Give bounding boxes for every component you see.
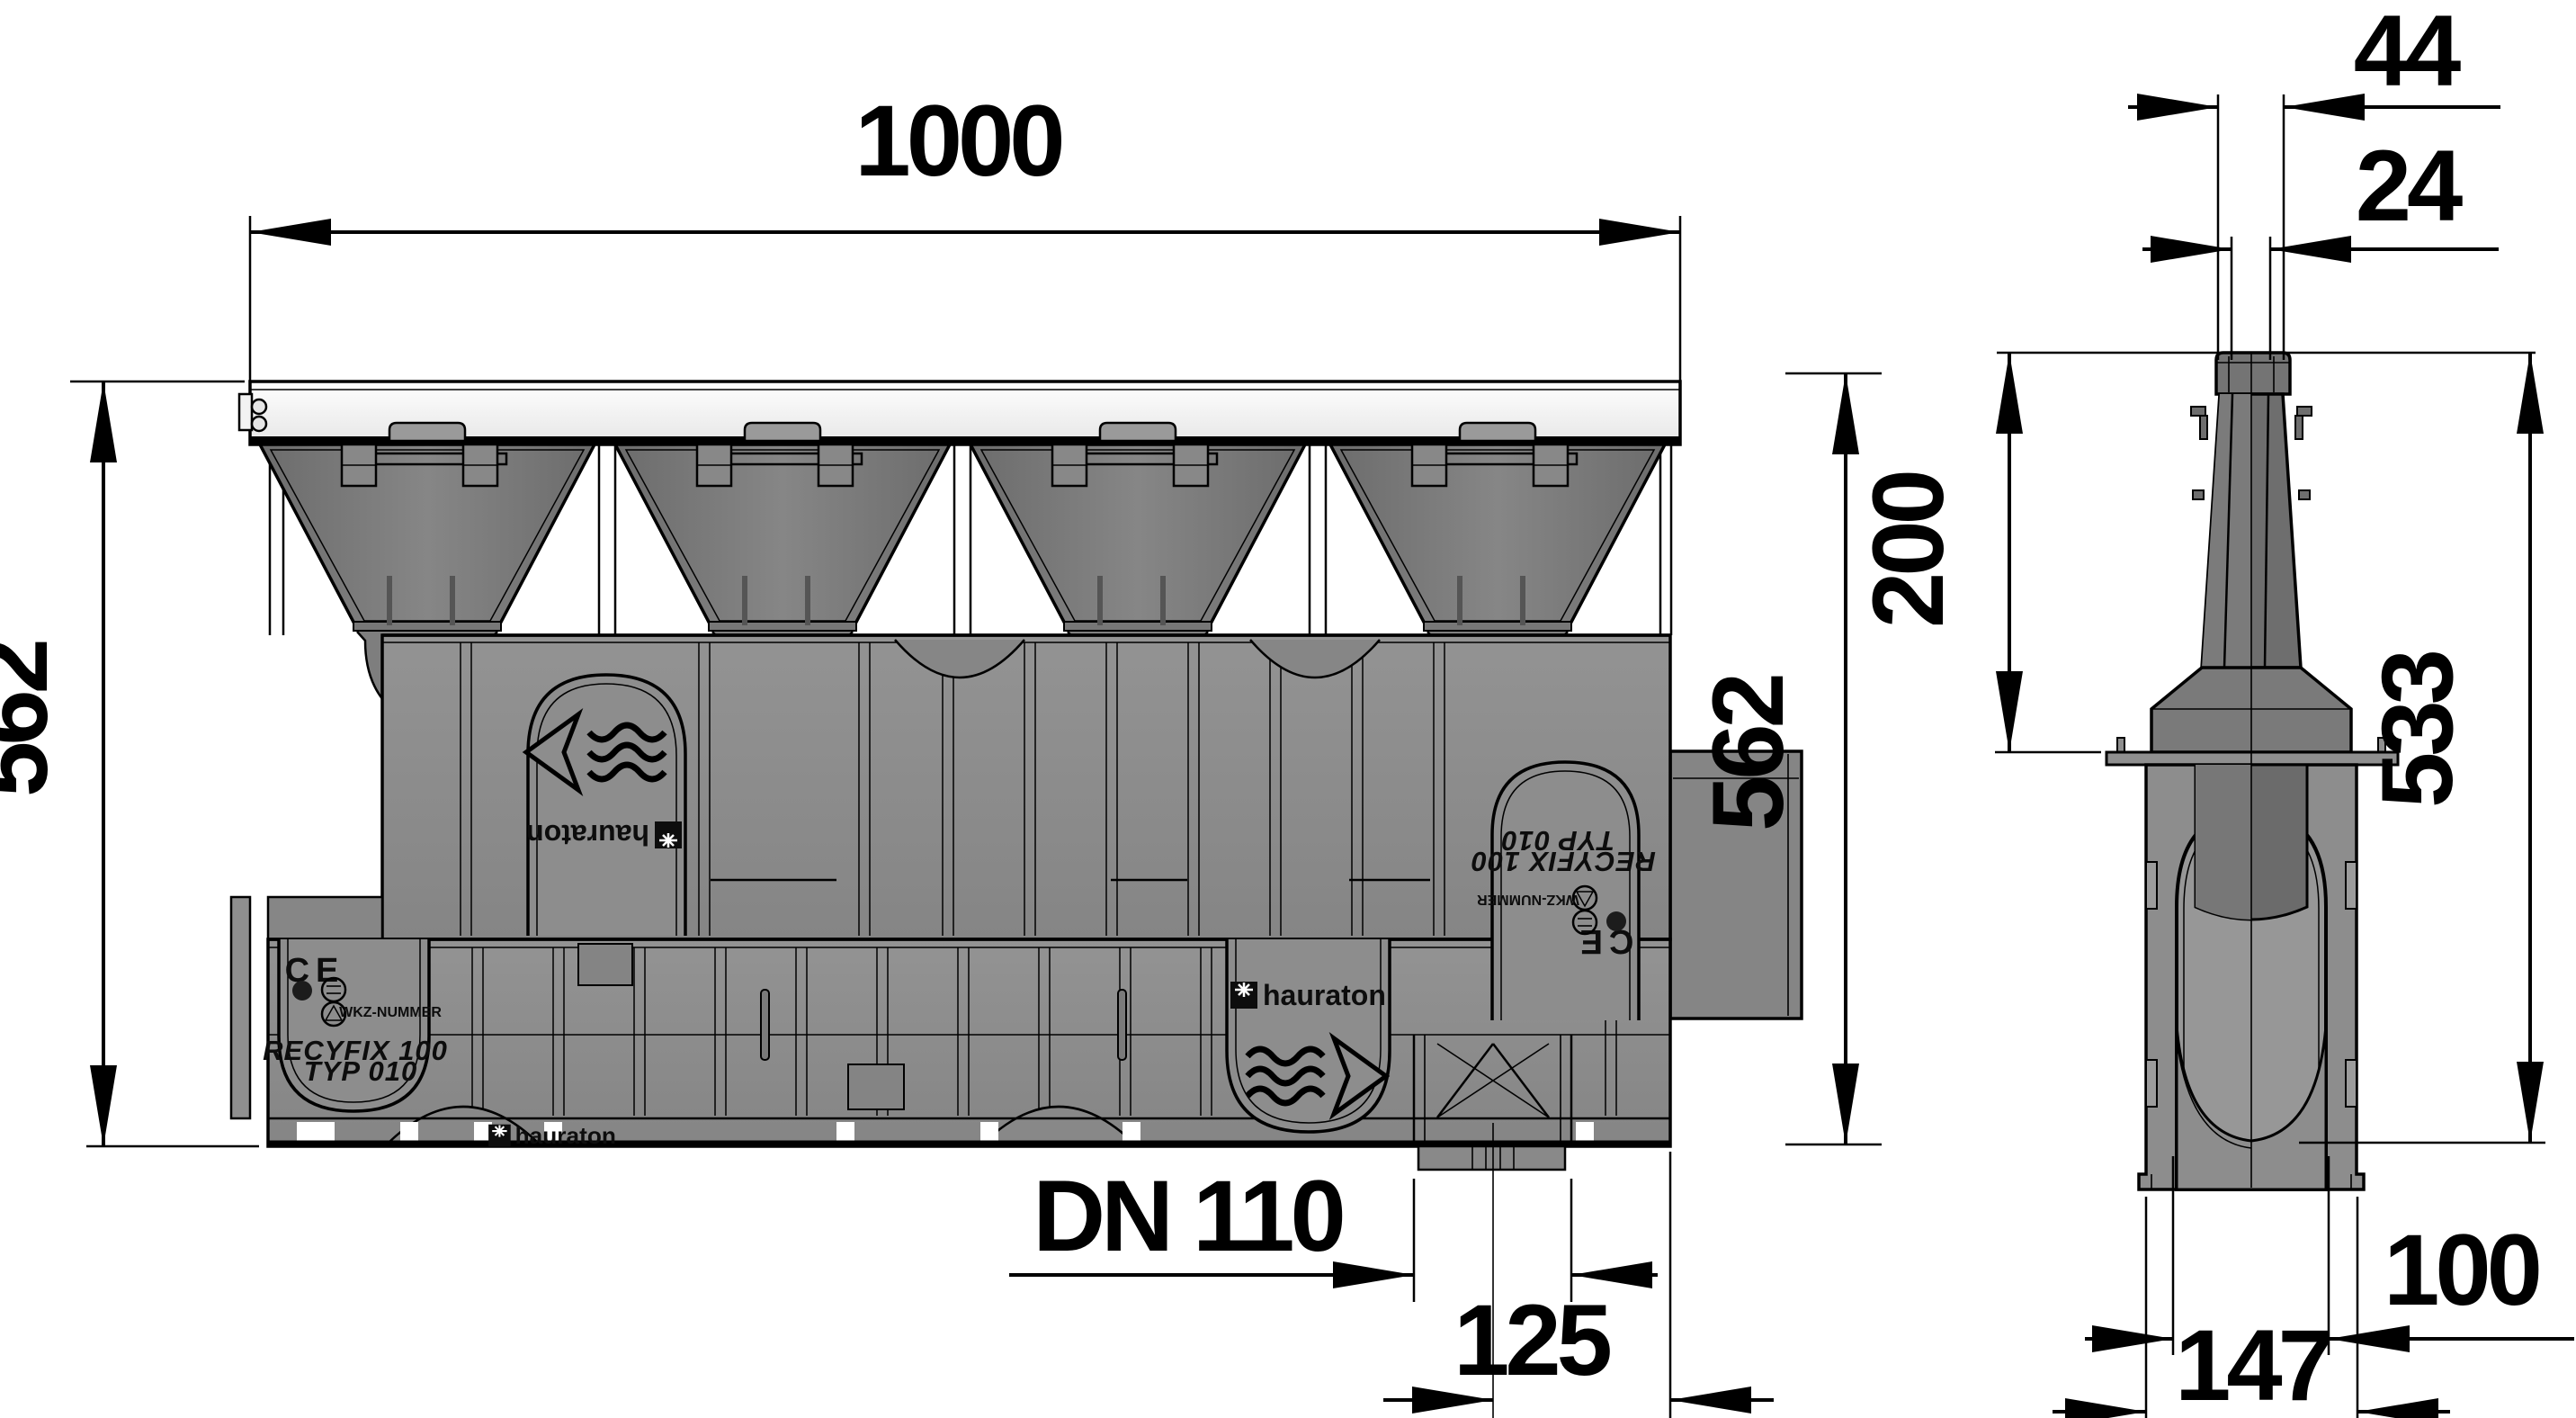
hauraton-logo: hauraton [526,819,682,851]
brand-text: hauraton [515,1122,616,1149]
dim-label-neck-height: 200 [1852,472,1964,628]
wkz-label: WKZ-NUMMER [1477,892,1579,907]
screw-icon [252,399,266,414]
dim-label-width: 1000 [854,85,1061,197]
dim-outlet-dn110: DN 110 [1009,1160,1658,1302]
emblem-panel-inverted: CE WKZ-NUMMER RECYFIX 100 TYP 010 [1471,762,1656,1020]
hauraton-logo: hauraton [1230,979,1386,1011]
front-view: hauraton CE WKZ-NUMMER RECYFIX 100 TYP 0… [0,85,1882,1418]
side-view: 44 24 200 533 [1852,0,2574,1418]
dim-label-outlet: DN 110 [1033,1160,1342,1272]
channel-body: hauraton CE WKZ-NUMMER RECYFIX 100 TYP 0… [231,635,1802,1170]
ce-mark: CE [1574,922,1634,960]
technical-drawing-canvas: hauraton CE WKZ-NUMMER RECYFIX 100 TYP 0… [0,0,2576,1418]
screw-icon [252,417,266,431]
dim-label-inner-height: 533 [2361,651,2473,808]
hauraton-logo: hauraton [488,1122,616,1149]
dim-label-slot-inner: 24 [2356,130,2463,242]
certification-badge [1606,911,1626,931]
type-label: TYP 010 [304,1055,417,1087]
dim-width-1000: 1000 [250,85,1680,381]
dim-label-height-right: 562 [1692,676,1804,831]
grating-end-bracket [239,394,252,430]
type-label: TYP 010 [1501,825,1614,857]
ce-mark: CE [285,952,345,990]
brand-text: hauraton [1263,979,1386,1011]
dim-label-outlet-offset: 125 [1453,1284,1611,1396]
dim-label-height-left: 562 [0,642,68,797]
dim-label-inner-width: 100 [2384,1214,2539,1326]
dim-height-562-left: 562 [0,381,259,1146]
flow-panel: hauraton [1227,939,1390,1132]
dim-slot-inner-24: 24 [2142,130,2499,360]
dim-label-slot-outer: 44 [2354,0,2461,107]
flange [2106,752,2398,765]
dim-label-outer-width: 147 [2175,1309,2330,1418]
side-hook [2297,407,2312,416]
end-plate-left [231,897,250,1118]
certification-badge [292,981,312,1001]
flow-panel-inverted: hauraton [526,675,685,936]
brand-text: hauraton [526,819,649,851]
side-hook [2191,407,2205,416]
dim-neck-height-200: 200 [1852,353,2101,752]
wkz-label: WKZ-NUMMER [339,1005,442,1020]
